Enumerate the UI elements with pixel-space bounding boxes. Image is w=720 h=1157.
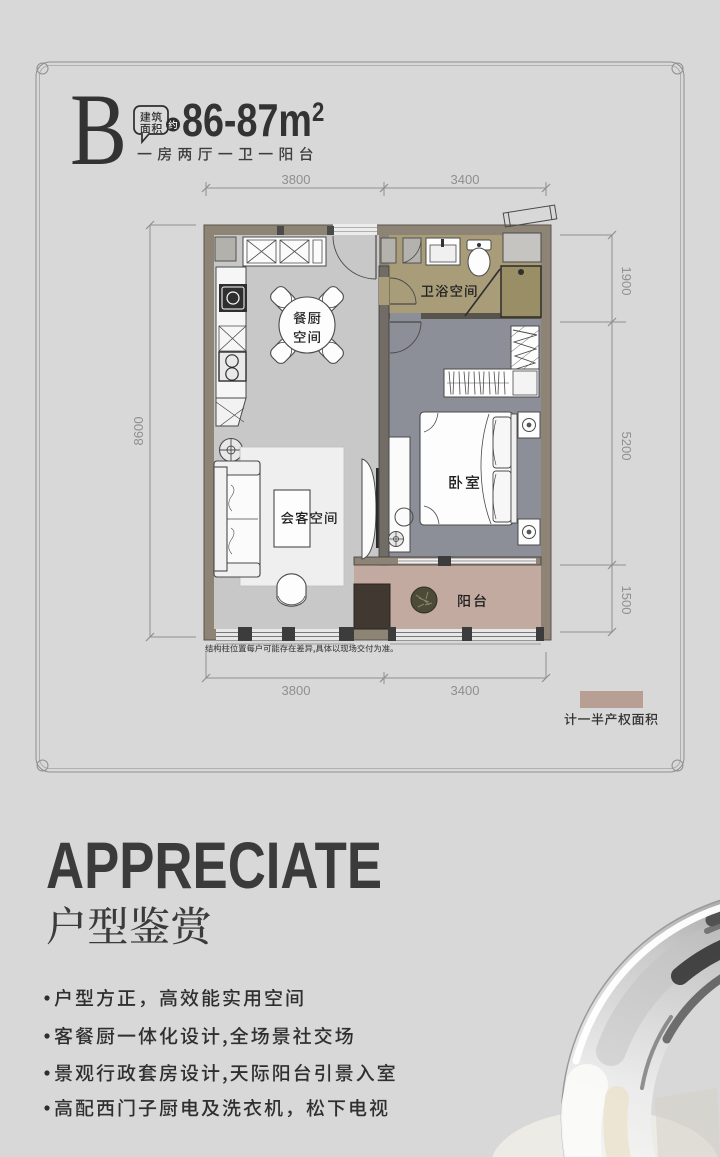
svg-text:APPRECIATE: APPRECIATE: [46, 828, 382, 902]
svg-text:1900: 1900: [619, 267, 634, 296]
svg-text:86-87m2: 86-87m2: [182, 94, 324, 145]
svg-text:B: B: [70, 74, 127, 187]
svg-text:1500: 1500: [619, 586, 634, 615]
svg-text:5200: 5200: [619, 432, 634, 461]
svg-text:3800: 3800: [282, 683, 311, 698]
svg-text:3800: 3800: [282, 172, 311, 187]
svg-text:3400: 3400: [451, 683, 480, 698]
svg-text:8600: 8600: [131, 417, 146, 446]
svg-text:3400: 3400: [451, 172, 480, 187]
